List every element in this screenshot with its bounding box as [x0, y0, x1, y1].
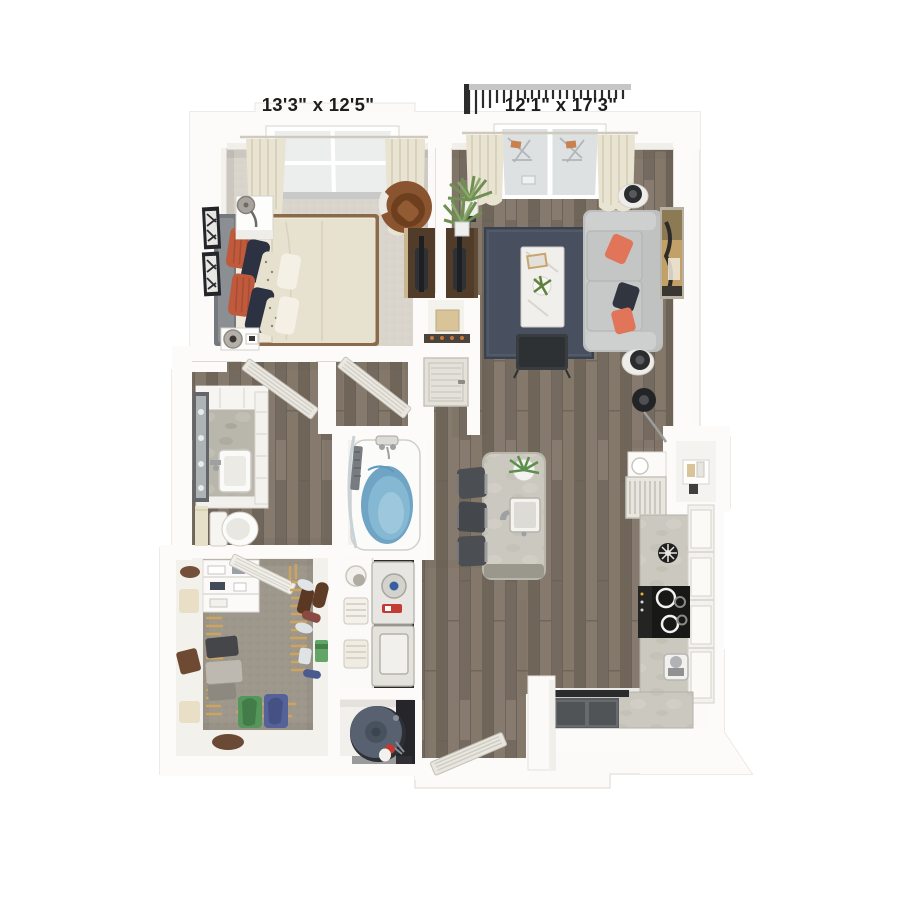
svg-text:13'3" x 12'5": 13'3" x 12'5" — [262, 94, 375, 115]
svg-text:12'1" x 17'3": 12'1" x 17'3" — [505, 94, 618, 115]
